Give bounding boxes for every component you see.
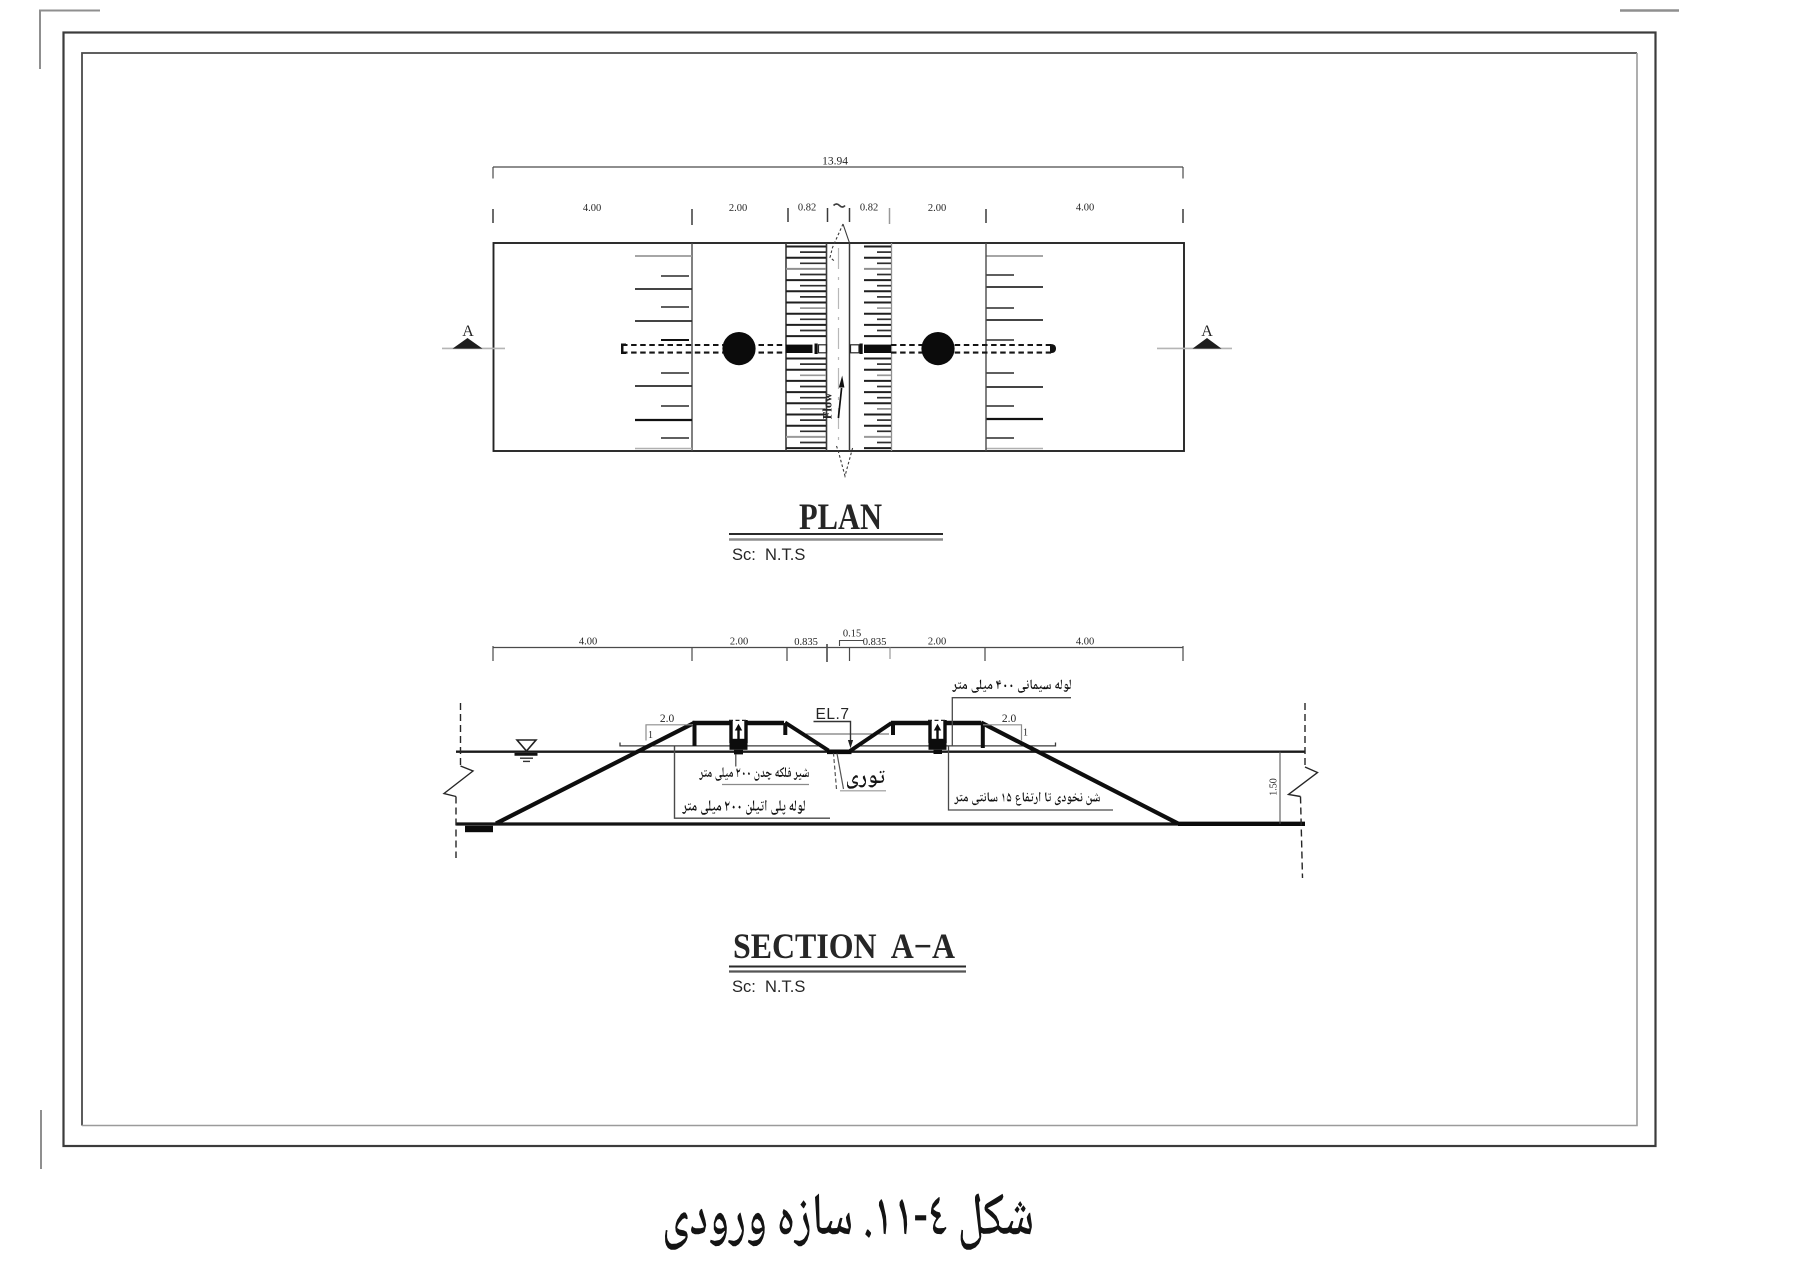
- svg-text:A: A: [462, 323, 474, 340]
- svg-text:Flow: Flow: [821, 393, 835, 419]
- svg-text:EL.7: EL.7: [816, 706, 850, 723]
- svg-text:A: A: [1201, 323, 1213, 340]
- svg-text:Sc: N.T.S: Sc: N.T.S: [732, 978, 805, 996]
- svg-text:2.00: 2.00: [928, 637, 946, 648]
- svg-text:2.00: 2.00: [928, 203, 946, 214]
- svg-text:SECTION A−A: SECTION A−A: [733, 926, 955, 966]
- svg-text:PLAN: PLAN: [799, 497, 882, 538]
- svg-text:4.00: 4.00: [583, 203, 601, 214]
- svg-text:2.0: 2.0: [660, 713, 675, 725]
- svg-text:0.835: 0.835: [863, 637, 887, 648]
- svg-text:0.82: 0.82: [860, 203, 878, 214]
- svg-text:0.15: 0.15: [843, 629, 861, 640]
- svg-text:1: 1: [648, 730, 653, 741]
- svg-text:0.82: 0.82: [798, 203, 816, 214]
- svg-text:4.00: 4.00: [1076, 203, 1094, 214]
- svg-text:0.835: 0.835: [794, 637, 818, 648]
- svg-text:1.50: 1.50: [1269, 778, 1280, 796]
- svg-text:1: 1: [1023, 728, 1028, 739]
- svg-text:13.94: 13.94: [822, 156, 848, 168]
- svg-text:Sc: N.T.S: Sc: N.T.S: [732, 546, 805, 564]
- svg-text:4.00: 4.00: [579, 637, 597, 648]
- svg-text:2.00: 2.00: [730, 637, 748, 648]
- svg-text:4.00: 4.00: [1076, 637, 1094, 648]
- svg-text:2.0: 2.0: [1002, 713, 1017, 725]
- svg-text:2.00: 2.00: [729, 203, 747, 214]
